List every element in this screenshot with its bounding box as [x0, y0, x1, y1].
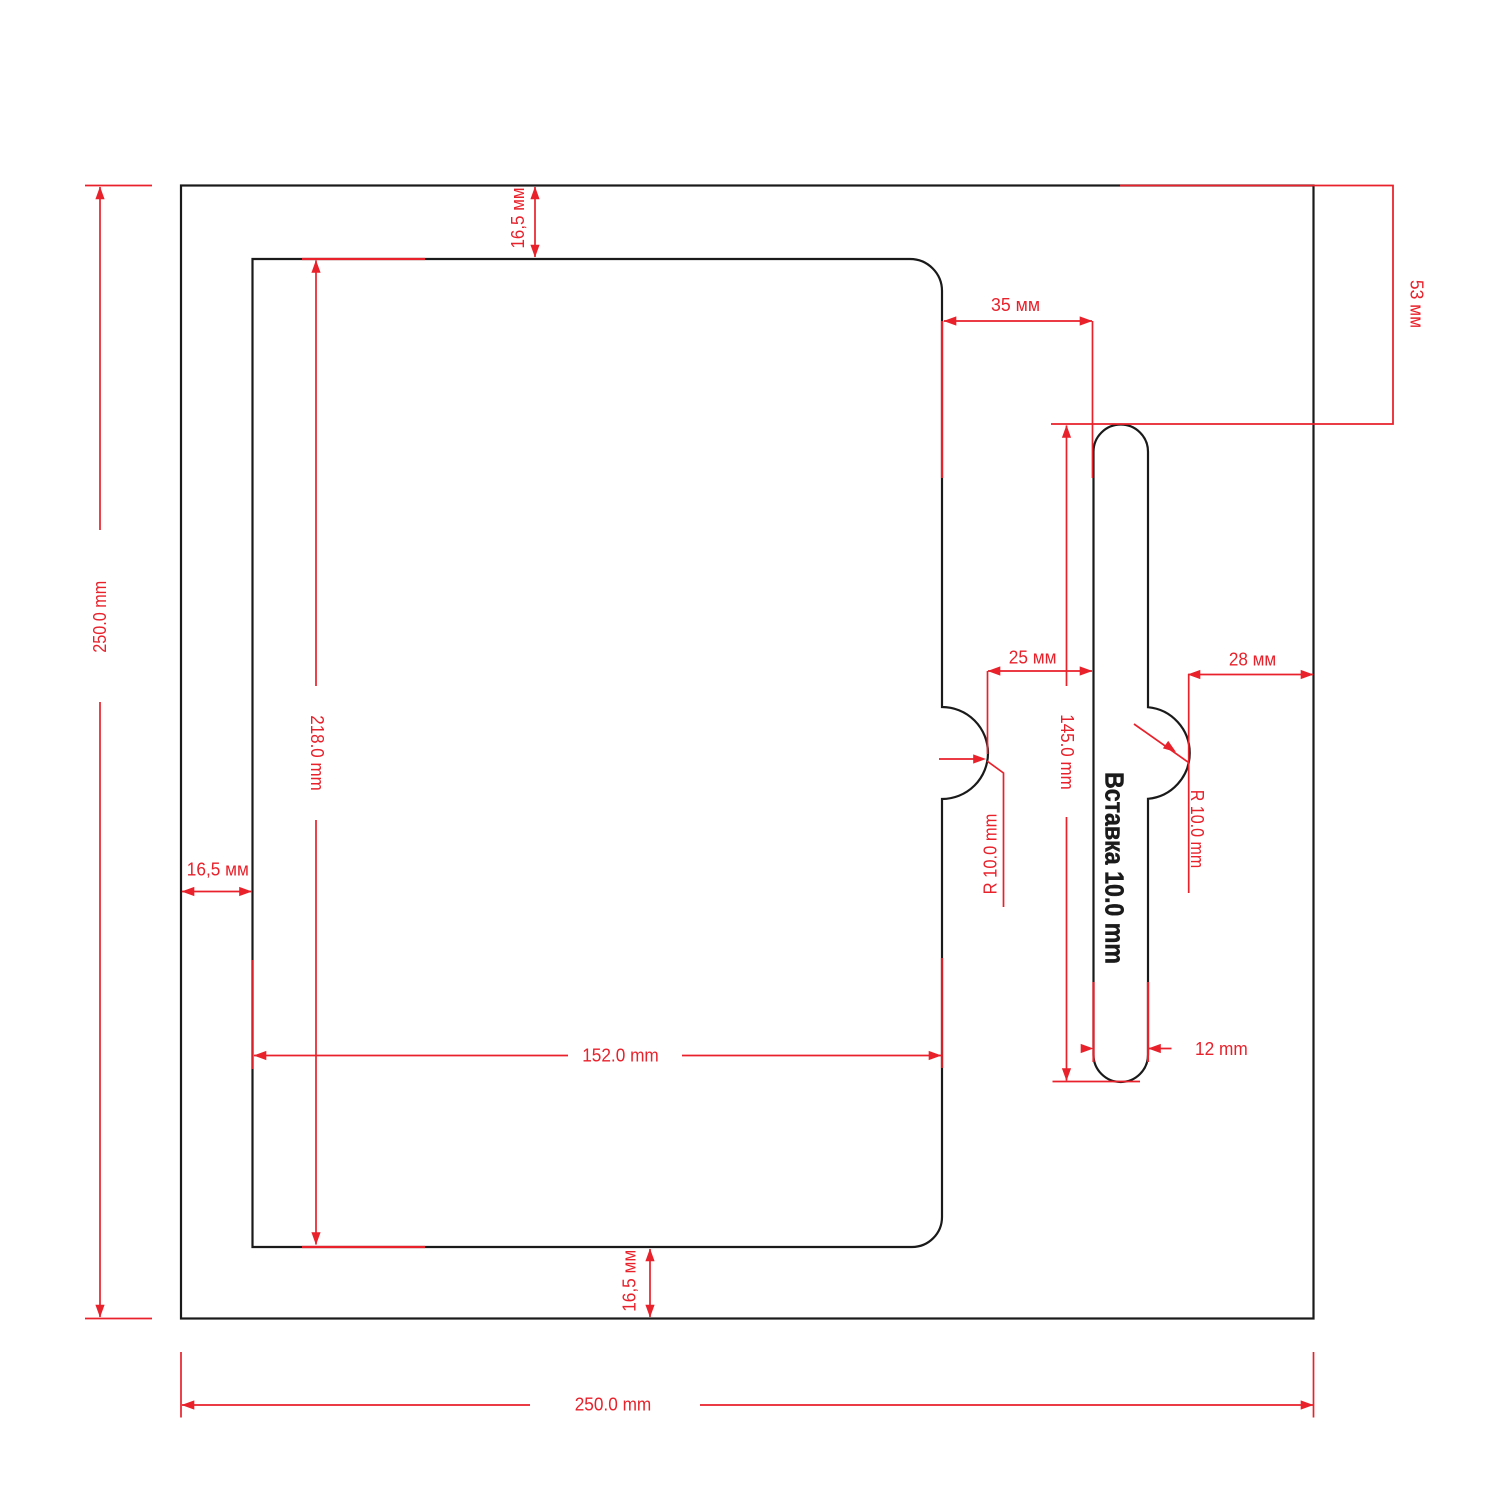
svg-text:16,5 мм: 16,5 мм — [507, 188, 528, 249]
svg-text:145.0 mm: 145.0 mm — [1057, 714, 1078, 790]
svg-text:16,5 мм: 16,5 мм — [187, 859, 249, 880]
svg-text:25 мм: 25 мм — [1009, 647, 1057, 668]
svg-text:R 10.0 mm: R 10.0 mm — [980, 814, 1001, 895]
svg-text:53 мм: 53 мм — [1407, 280, 1428, 328]
svg-text:152.0 mm: 152.0 mm — [582, 1045, 659, 1066]
svg-text:250.0 mm: 250.0 mm — [89, 581, 110, 653]
svg-text:250.0 mm: 250.0 mm — [575, 1394, 652, 1415]
svg-text:R 10.0 mm: R 10.0 mm — [1187, 790, 1208, 869]
svg-text:28 мм: 28 мм — [1229, 649, 1276, 670]
svg-text:35 мм: 35 мм — [991, 294, 1040, 315]
svg-text:16,5 мм: 16,5 мм — [619, 1250, 640, 1312]
svg-text:218.0 mm: 218.0 mm — [307, 715, 328, 791]
svg-text:Вставка 10.0 mm: Вставка 10.0 mm — [1100, 772, 1128, 964]
svg-text:12 mm: 12 mm — [1195, 1038, 1248, 1059]
